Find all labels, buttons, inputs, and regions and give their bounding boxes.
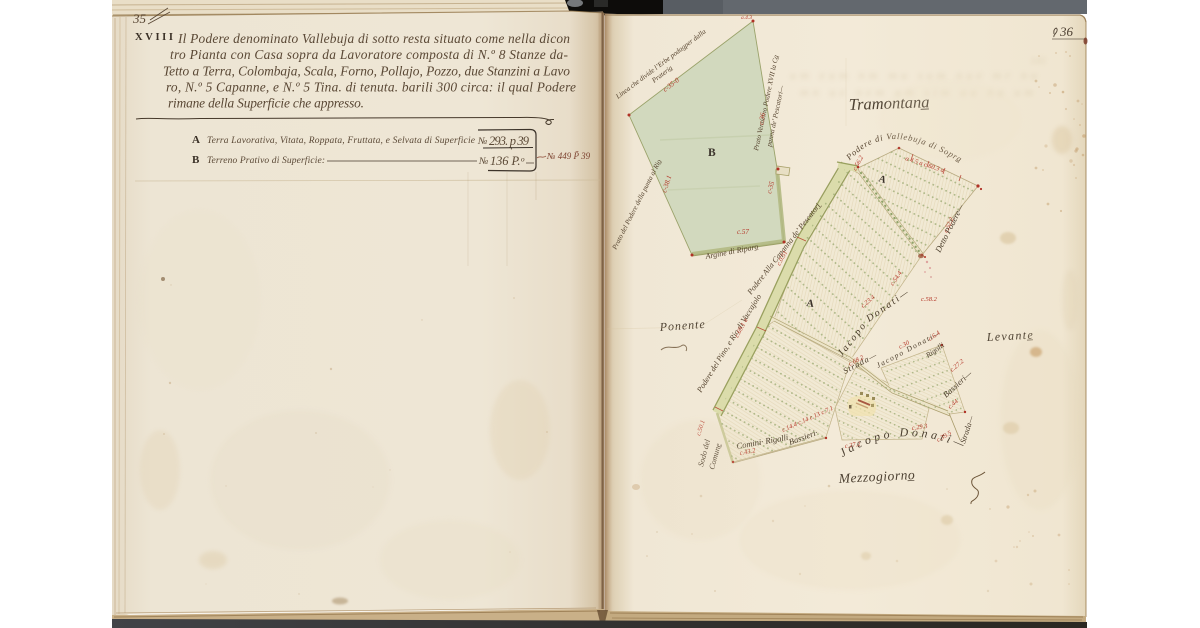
svg-text:c.57: c.57 <box>737 228 749 236</box>
svg-text:Ponente: Ponente <box>658 317 706 334</box>
svg-text:a.4.3: a.4.3 <box>741 14 752 21</box>
svg-text:Prato del Podere della punta a: Prato del Podere della punta al Rio̲ <box>610 158 663 252</box>
svg-text:Mezzogiorno̲: Mezzogiorno̲ <box>837 467 915 486</box>
svg-text:c.58.2: c.58.2 <box>921 296 938 303</box>
svg-text:B: B <box>708 147 716 159</box>
svg-text:36: 36 <box>1059 24 1074 39</box>
svg-text:141: 141 <box>1030 55 1047 67</box>
svg-text:um eum nm mu sum nue mr nu: um eum nm mu sum nue mr nu <box>790 68 1041 82</box>
